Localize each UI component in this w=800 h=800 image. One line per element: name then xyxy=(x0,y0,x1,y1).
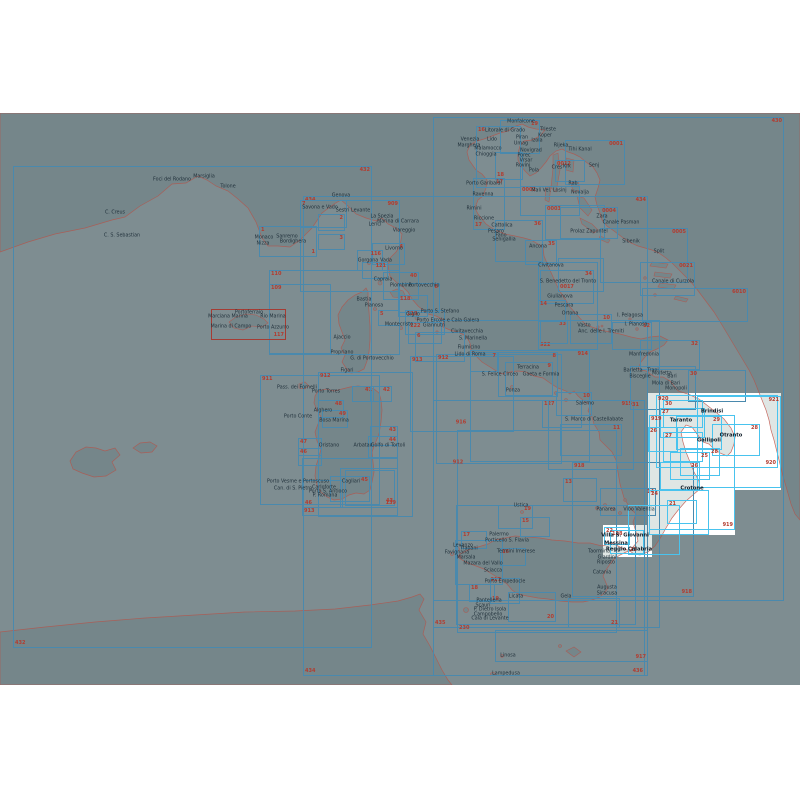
place-label: Fiumicino xyxy=(458,347,481,352)
chart-rect-46[interactable]: 46 xyxy=(298,448,322,466)
place-label: Viareggio xyxy=(393,230,416,235)
chart-number: 30 xyxy=(665,402,672,407)
chart-number: 0003 xyxy=(547,207,561,212)
chart-rect-33[interactable]: 33 xyxy=(540,320,568,344)
place-label: Split xyxy=(654,251,665,256)
place-label: Bosa Marina xyxy=(319,420,349,425)
place-label: I. Pianosa xyxy=(625,324,648,329)
chart-number: 1 xyxy=(312,250,315,255)
chart-number: 909 xyxy=(388,202,398,207)
place-label: Civitanova xyxy=(538,265,563,270)
chart-number: 48 xyxy=(335,402,342,407)
place-label: Montecristo xyxy=(385,324,413,329)
chart-number: 49 xyxy=(339,412,346,417)
chart-number: 912 xyxy=(453,461,463,466)
chart-number: 10 xyxy=(603,316,610,321)
chart-number: 110 xyxy=(271,272,281,277)
chart-number: 8 xyxy=(553,354,556,359)
place-label: Civitavecchia xyxy=(451,331,483,336)
chart-number: 11 xyxy=(613,426,620,431)
chart-number: 913 xyxy=(304,509,314,514)
place-label: Novalja xyxy=(571,192,589,197)
chart-number: 2 xyxy=(340,216,343,221)
chart-number: 14 xyxy=(540,302,547,307)
chart-number: 17 xyxy=(475,223,482,228)
place-label: Litorale di Grado xyxy=(485,130,525,135)
place-label: Monopoli xyxy=(665,388,687,393)
chart-number: 33 xyxy=(559,322,566,327)
chart-number: 0004 xyxy=(602,209,616,214)
chart-number: 919 xyxy=(651,417,661,422)
place-label: Terracina xyxy=(517,367,539,372)
chart-number: 26 xyxy=(650,429,657,434)
chart-number: 917 xyxy=(636,655,646,660)
place-label: C. Creus xyxy=(105,212,125,217)
place-label: Nizza xyxy=(257,243,270,248)
chart-number: 116 xyxy=(371,252,381,257)
chart-number: 117 xyxy=(274,333,284,338)
place-label: Gorgona xyxy=(358,260,379,265)
place-label: Riposto xyxy=(597,562,615,567)
place-label: Monfalcone xyxy=(507,121,535,126)
place-label: Krk xyxy=(563,166,571,171)
place-label: Vada xyxy=(380,260,392,265)
place-label: Panarea xyxy=(596,509,615,514)
place-label: Figari xyxy=(340,370,353,375)
chart-number: 6010 xyxy=(732,290,746,295)
chart-number: 47 xyxy=(300,440,307,445)
chart-rect-917[interactable]: 917 xyxy=(495,630,648,662)
place-label: Porto Empedocle xyxy=(485,581,526,586)
place-label: Cala di Levante xyxy=(471,618,508,623)
place-label: S. Felice Circeo xyxy=(482,374,518,379)
chart-number: 912 xyxy=(438,356,448,361)
place-label: Ustica xyxy=(514,505,529,510)
chart-number: 434 xyxy=(636,198,646,203)
place-label: C. S. Sebastian xyxy=(104,235,140,240)
place-label: Lido di Roma xyxy=(454,354,485,359)
chart-number: 40 xyxy=(410,274,417,279)
chart-number: 13 xyxy=(565,480,572,485)
chart-number: 10 xyxy=(583,394,590,399)
place-label: Villa S. Giovanni xyxy=(601,533,649,538)
chart-number: 0001 xyxy=(609,142,623,147)
place-label: Lampedusa xyxy=(492,673,520,678)
place-label: Brindisi xyxy=(701,409,723,414)
chart-rect-0017[interactable]: 0017 xyxy=(558,258,604,292)
place-label: Porto Torres xyxy=(312,391,340,396)
chart-number: 916 xyxy=(456,421,466,426)
place-label: Marina di Campo xyxy=(211,326,252,331)
chart-number: 45 xyxy=(361,478,368,483)
place-label: Riccione xyxy=(474,218,494,223)
place-label: Levanzo xyxy=(453,545,473,550)
place-label: Gallipoli xyxy=(697,438,721,443)
place-label: Taranto xyxy=(670,418,692,423)
chart-number: 1 xyxy=(261,228,264,233)
chart-number: 44 xyxy=(389,438,396,443)
place-label: Sciacca xyxy=(484,570,502,575)
place-label: Can. di S. Pietro xyxy=(274,488,312,493)
place-label: Bordighera xyxy=(280,241,306,246)
place-label: Bisceglie xyxy=(629,376,650,381)
place-label: Umag xyxy=(514,143,528,148)
place-label: P. Romana xyxy=(313,495,338,500)
place-label: Marina di Carrara xyxy=(377,221,419,226)
place-label: Mazara del Vallo xyxy=(463,563,502,568)
place-label: Tolone xyxy=(220,186,235,191)
chart-number: 42 xyxy=(383,388,390,393)
place-label: Mali Vel. Losinj xyxy=(531,190,566,195)
place-label: Marciana Marina xyxy=(208,316,248,321)
place-label: Tihi Kanal xyxy=(568,149,591,154)
place-label: Cagliari xyxy=(342,481,360,486)
chart-number: 28 xyxy=(711,450,718,455)
chart-number: 918 xyxy=(682,590,692,595)
chart-number: 46 xyxy=(305,501,312,506)
chart-number: 32 xyxy=(691,342,698,347)
chart-number: 432 xyxy=(360,168,370,173)
place-label: Prolaz Zapuntel xyxy=(570,231,607,236)
place-label: Ajaccio xyxy=(333,337,350,342)
place-label: Ponza xyxy=(506,390,520,395)
place-label: Gela xyxy=(561,596,572,601)
place-label: S. Marinella xyxy=(459,338,487,343)
chart-rect-overlay: 4304324324344344344354362309097112341161… xyxy=(0,0,800,800)
place-label: Gaeta e Formia xyxy=(523,374,560,379)
place-label: Foci del Rodano xyxy=(153,179,191,184)
place-label: Termini Imerese xyxy=(497,551,535,556)
chart-number: 9 xyxy=(548,364,551,369)
place-label: Manfredonia xyxy=(629,354,659,359)
place-label: Arbatax xyxy=(354,445,373,450)
place-label: Senigallia xyxy=(492,239,515,244)
place-label: I. Pelagosa xyxy=(617,315,643,320)
chart-number: 6 xyxy=(417,334,420,339)
place-label: Senj xyxy=(589,165,599,170)
chart-number: 914 xyxy=(578,352,588,357)
place-label: Porto S. Stefano xyxy=(421,311,460,316)
chart-number: 29 xyxy=(713,418,720,423)
chart-number: 430 xyxy=(772,119,782,124)
place-label: Sibenik xyxy=(622,241,640,246)
place-label: Izola xyxy=(531,140,542,145)
chart-number: 912 xyxy=(320,374,330,379)
chart-number: 28 xyxy=(751,426,758,431)
chart-number: 913 xyxy=(412,358,422,363)
place-label: Giannutri xyxy=(423,325,445,330)
place-label: Chioggia xyxy=(475,154,496,159)
place-label: Pescara xyxy=(555,305,574,310)
chart-number: 921 xyxy=(769,398,779,403)
place-label: Anc. delle I. Tremiti xyxy=(578,331,624,336)
place-label: Rio Marina xyxy=(260,316,286,321)
chart-number: 16 xyxy=(478,128,485,133)
place-label: Savona e Vado xyxy=(302,207,338,212)
place-label: Otranto xyxy=(720,433,743,438)
place-label: Salerno xyxy=(576,403,594,408)
place-label: Porto Garibaldi xyxy=(466,183,502,188)
chart-number: 31 xyxy=(632,403,639,408)
place-label: Ravenna xyxy=(473,194,494,199)
chart-catalog-page: 4304324324344344344354362309097112341161… xyxy=(0,0,800,800)
place-label: Porto Azzurro xyxy=(257,327,289,332)
chart-number: 109 xyxy=(271,286,281,291)
place-label: Rijeka xyxy=(554,145,569,150)
place-label: Porticello S. Flavia xyxy=(485,540,529,545)
place-label: Portovecchio xyxy=(409,285,440,290)
chart-rect-11[interactable]: 11 xyxy=(560,424,622,456)
chart-number: 24 xyxy=(651,492,658,497)
place-label: Sestri Levante xyxy=(336,210,370,215)
chart-number: 230 xyxy=(459,626,469,631)
place-label: Linosa xyxy=(500,655,515,660)
chart-number: 25 xyxy=(701,454,708,459)
place-label: G. di Portovecchio xyxy=(350,358,394,363)
chart-rect-6010[interactable]: 6010 xyxy=(642,288,748,322)
place-label: Livorno xyxy=(385,248,403,253)
place-label: Cres xyxy=(552,167,563,172)
chart-number: 121 xyxy=(376,264,386,269)
chart-rect-3[interactable]: 3 xyxy=(318,234,345,250)
place-label: Bari xyxy=(667,376,677,381)
place-label: Rimini xyxy=(466,208,481,213)
chart-number: 919 xyxy=(723,523,733,528)
place-label: Crotone xyxy=(680,486,703,491)
place-label: Pianosa xyxy=(365,305,383,310)
chart-number: 0021 xyxy=(679,264,693,269)
place-label: Reggio Calabria xyxy=(606,547,652,552)
chart-number: 432 xyxy=(15,641,25,646)
chart-rect-13[interactable]: 13 xyxy=(563,478,597,502)
place-label: Giulianova xyxy=(547,296,572,301)
chart-number: 5 xyxy=(380,312,383,317)
chart-number: 118 xyxy=(400,297,410,302)
place-label: Siracusa xyxy=(597,593,617,598)
chart-number: 918 xyxy=(574,464,584,469)
chart-number: 43 xyxy=(389,428,396,433)
chart-number: 0005 xyxy=(672,230,686,235)
chart-number: 434 xyxy=(305,669,315,674)
place-label: Ortona xyxy=(562,313,579,318)
place-label: Marsiglia xyxy=(193,176,215,181)
place-label: Canale Pasman xyxy=(603,222,640,227)
place-label: Oristano xyxy=(319,445,339,450)
place-label: Alghero xyxy=(314,410,332,415)
place-label: Rab xyxy=(568,183,577,188)
chart-number: 911 xyxy=(262,377,272,382)
place-label: Canale di Curzola xyxy=(652,281,694,286)
chart-number: 36 xyxy=(534,222,541,227)
place-label: Genova xyxy=(332,195,350,200)
chart-number: 436 xyxy=(633,669,643,674)
place-label: Pola xyxy=(529,170,539,175)
place-label: Porto Conte xyxy=(284,416,312,421)
chart-number: 139 xyxy=(386,501,396,506)
chart-number: 27 xyxy=(665,434,672,439)
place-label: Catania xyxy=(593,572,611,577)
place-label: S. Marco di Castellabate xyxy=(565,419,623,424)
place-label: Lido xyxy=(487,139,497,144)
place-label: Licata xyxy=(509,596,523,601)
chart-number: 0017 xyxy=(560,285,574,290)
place-label: Golfo di Tortoli xyxy=(371,445,406,450)
place-label: Ancona xyxy=(529,246,547,251)
chart-number: 30 xyxy=(690,372,697,377)
chart-number: 3 xyxy=(340,236,343,241)
chart-rect-2[interactable]: 2 xyxy=(318,214,345,231)
place-label: S. Benedetto del Tronto xyxy=(540,281,596,286)
chart-number: 7 xyxy=(493,354,496,359)
chart-rect-42[interactable]: 42 xyxy=(370,386,392,402)
chart-number: 46 xyxy=(300,450,307,455)
place-label: Vibo Valentia xyxy=(623,509,654,514)
chart-number: 26 xyxy=(691,464,698,469)
chart-number: 35 xyxy=(548,242,555,247)
